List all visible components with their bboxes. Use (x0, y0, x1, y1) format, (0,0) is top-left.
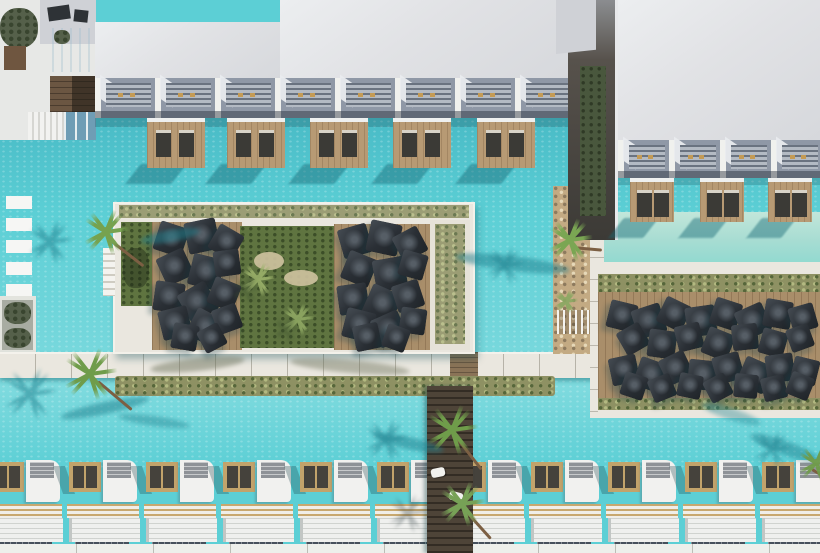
palm-tree (83, 207, 129, 253)
balcony-light (699, 155, 704, 159)
cabana-slat-band (0, 504, 62, 518)
balcony-light (238, 93, 243, 97)
terrace-sunbed (637, 190, 652, 217)
cabana-pergola-box (608, 518, 679, 542)
daybed-cushion (766, 466, 777, 488)
rooftop-plants (0, 8, 38, 48)
top-building-roof-left (95, 22, 285, 78)
white-slat-canopy (28, 112, 64, 140)
terrace-plant (54, 30, 70, 44)
balcony-light (298, 93, 303, 97)
palm-shadow (231, 273, 261, 303)
palm-crown (243, 285, 249, 291)
terrace-sunbed (792, 190, 807, 217)
balcony-light (358, 93, 363, 97)
aerial-resort-photo: Aerial top-down photograph of a resort s… (0, 0, 820, 553)
balcony-light (250, 93, 255, 97)
daybed-cushion (612, 466, 623, 488)
rooftop-equipment-2 (73, 9, 88, 22)
right-balcony-row (618, 140, 820, 178)
balcony-module (95, 78, 155, 118)
bar-windows (64, 112, 96, 140)
daybed-cushion (625, 466, 636, 488)
terrace-sunbed (319, 130, 334, 157)
terrace-sunbed (402, 130, 417, 157)
daybed-cushion (394, 466, 405, 488)
roof-nw-piece (556, 0, 596, 54)
palm-crown (27, 389, 33, 395)
cabana-slat-band (529, 504, 601, 518)
daybed-cushion (227, 466, 238, 488)
right-deck-stone-top (598, 262, 820, 274)
daybed-cushion (0, 466, 7, 488)
cabana-bed-shadow (361, 466, 383, 494)
daybed-cushion (535, 466, 546, 488)
palm-crown (405, 509, 411, 515)
balcony-module (515, 78, 575, 118)
cabana-pergola-box (762, 518, 820, 542)
balcony-pergola-slats (526, 83, 571, 107)
balcony-shade (215, 111, 275, 118)
pool-umbrella (733, 373, 759, 399)
palm-crown (449, 425, 455, 431)
cabana-pergola-box (300, 518, 371, 542)
balcony-pergola-slats (346, 83, 391, 107)
lawn-sand-patch-2 (284, 270, 318, 286)
swim-up-terrace (630, 178, 674, 222)
cabana-unit (219, 456, 296, 553)
balcony-light (490, 93, 495, 97)
balcony-module (335, 78, 395, 118)
cabana-slat-band (606, 504, 678, 518)
daybed-cushion (150, 466, 161, 488)
left-planter-plants-2 (4, 328, 31, 348)
balcony-pergola-slats (731, 145, 767, 169)
terrace-sunbed (259, 130, 274, 157)
balcony-pergola-slats (106, 83, 151, 107)
swim-up-terrace (310, 118, 368, 168)
balcony-module (215, 78, 275, 118)
palm-tree (64, 346, 116, 398)
balcony-module (618, 140, 669, 178)
cabana-bed-shadow (669, 466, 691, 494)
palm-shadow (364, 416, 408, 460)
cabana-pergola-box (531, 518, 602, 542)
palm-tree (554, 288, 578, 312)
top-building-roof (280, 0, 575, 78)
balcony-shade (720, 171, 771, 178)
terrace-sunbed (509, 130, 524, 157)
balcony-pergola-slats (166, 83, 211, 107)
swim-up-terrace (700, 178, 744, 222)
cabana-pergola-box (146, 518, 217, 542)
cabana-bed-shadow (53, 466, 75, 494)
cabana-unit (142, 456, 219, 553)
balcony-light (370, 93, 375, 97)
daybed-cushion (381, 466, 392, 488)
island-hedge-strip (115, 376, 555, 396)
palm-crown (502, 261, 508, 267)
balcony-light (637, 155, 642, 159)
pool-railing (557, 310, 591, 334)
terrace-sunbed (425, 130, 440, 157)
balcony-light (790, 155, 795, 159)
terrace-sunbed (654, 190, 669, 217)
balcony-light (190, 93, 195, 97)
pool-umbrella (731, 323, 760, 352)
swim-up-terrace (227, 118, 285, 168)
palm-shadow (3, 365, 57, 419)
daybed-cushion (702, 466, 713, 488)
daybed-cushion (779, 466, 790, 488)
balcony-module (669, 140, 720, 178)
daybed-cushion (240, 466, 251, 488)
terrace-sunbed (156, 130, 171, 157)
swim-up-terrace (393, 118, 451, 168)
palm-crown (567, 235, 573, 241)
palm-tree (798, 444, 820, 480)
balcony-module (275, 78, 335, 118)
pool-umbrella (352, 322, 383, 353)
terrace-sunbed (775, 190, 790, 217)
top-left-roof-block (0, 0, 96, 140)
balcony-pergola-slats (680, 145, 716, 169)
palm-shadow (272, 314, 300, 342)
balcony-shade (515, 111, 575, 118)
right-building (614, 0, 820, 222)
palm-crown (459, 499, 465, 505)
balcony-light (688, 155, 693, 159)
cabana-bed-shadow (207, 466, 229, 494)
balcony-pergola-slats (629, 145, 665, 169)
balcony-light (801, 155, 806, 159)
bottom-walkway-strip (0, 544, 820, 553)
palm-crown (383, 435, 389, 441)
cabana-bed-shadow (592, 466, 614, 494)
palm-shadow (752, 428, 792, 468)
cabana-unit (65, 456, 142, 553)
swim-up-terrace (477, 118, 535, 168)
balcony-light (538, 93, 543, 97)
palm-crown (283, 325, 289, 331)
terrace-sunbed (179, 130, 194, 157)
cabana-slat-band (760, 504, 820, 518)
balcony-shade (669, 171, 720, 178)
swim-up-terrace (768, 178, 812, 222)
cabana-slat-band (221, 504, 293, 518)
daybed-cushion (163, 466, 174, 488)
left-planter-plants (4, 302, 31, 324)
balcony-shade (618, 171, 669, 178)
top-balcony-row (95, 78, 575, 118)
balcony-shade (455, 111, 515, 118)
balcony-light (118, 93, 123, 97)
balcony-shade (771, 171, 820, 178)
balcony-light (648, 155, 653, 159)
pool-umbrella (170, 322, 200, 352)
palm-crown (87, 369, 93, 375)
terrace-sunbed (342, 130, 357, 157)
balcony-light (750, 155, 755, 159)
balcony-module (155, 78, 215, 118)
balcony-pergola-slats (286, 83, 331, 107)
daybed-cushion (86, 466, 97, 488)
cabana-unit (604, 456, 681, 553)
bridge-wood-insert (450, 352, 478, 378)
terrace-sunbed (486, 130, 501, 157)
daybed-cushion (9, 466, 20, 488)
palm-crown (813, 459, 819, 465)
cabana-pergola-box (69, 518, 140, 542)
palm-shadow (388, 492, 428, 532)
green-wall (580, 66, 606, 216)
balcony-module (395, 78, 455, 118)
palm-crown (103, 227, 109, 233)
right-umbrella-deck (598, 262, 820, 418)
balcony-light (130, 93, 135, 97)
balcony-shade (395, 111, 455, 118)
daybed-cushion (73, 466, 84, 488)
balcony-module (455, 78, 515, 118)
daybed-cushion (548, 466, 559, 488)
palm-shadow (27, 217, 73, 263)
daybed-cushion (689, 466, 700, 488)
balcony-pergola-slats (782, 145, 818, 169)
cabana-pergola-box (223, 518, 294, 542)
terrace-sunbed (707, 190, 722, 217)
daybed-cushion (317, 466, 328, 488)
balcony-module (771, 140, 820, 178)
palm-crown (769, 445, 775, 451)
balcony-light (739, 155, 744, 159)
balcony-light (478, 93, 483, 97)
cabana-unit (296, 456, 373, 553)
balcony-pergola-slats (466, 83, 511, 107)
palm-tree (427, 403, 477, 453)
palm-crown (563, 297, 569, 303)
island-right-shrubs (435, 224, 465, 344)
balcony-light (430, 93, 435, 97)
balcony-pergola-slats (226, 83, 271, 107)
daybed-cushion (304, 466, 315, 488)
cabana-pergola-box (685, 518, 756, 542)
balcony-light (310, 93, 315, 97)
swim-up-terrace (147, 118, 205, 168)
balcony-light (550, 93, 555, 97)
cabana-unit (681, 456, 758, 553)
palm-crown (47, 237, 53, 243)
cabana-bed-shadow (284, 466, 306, 494)
terrace-sunbed (236, 130, 251, 157)
cabana-bed-shadow (746, 466, 768, 494)
cabana-slat-band (298, 504, 370, 518)
island-top-shrubs (119, 205, 469, 218)
balcony-light (418, 93, 423, 97)
cabana-bed-shadow (515, 466, 537, 494)
walkway-chair (430, 467, 446, 479)
cabana-slat-band (67, 504, 139, 518)
balcony-module (720, 140, 771, 178)
cabana-bed-shadow (130, 466, 152, 494)
cabana-unit (527, 456, 604, 553)
balcony-shade (95, 111, 155, 118)
cabana-slat-band (144, 504, 216, 518)
balcony-light (178, 93, 183, 97)
palm-tree (439, 479, 485, 525)
palm-shadow (485, 244, 525, 284)
balcony-pergola-slats (406, 83, 451, 107)
balcony-shade (335, 111, 395, 118)
balcony-shade (275, 111, 335, 118)
cabana-slat-band (683, 504, 755, 518)
top-building (95, 0, 575, 170)
cabana-unit (0, 456, 65, 553)
right-building-roof (618, 0, 820, 140)
right-deck-hedge-top (598, 274, 820, 292)
terrace-sunbed (724, 190, 739, 217)
palm-tree (548, 216, 592, 260)
balcony-shade (155, 111, 215, 118)
pool-umbrella (676, 372, 704, 400)
cabana-pergola-box (0, 518, 63, 542)
planter-wood-box (4, 46, 26, 70)
